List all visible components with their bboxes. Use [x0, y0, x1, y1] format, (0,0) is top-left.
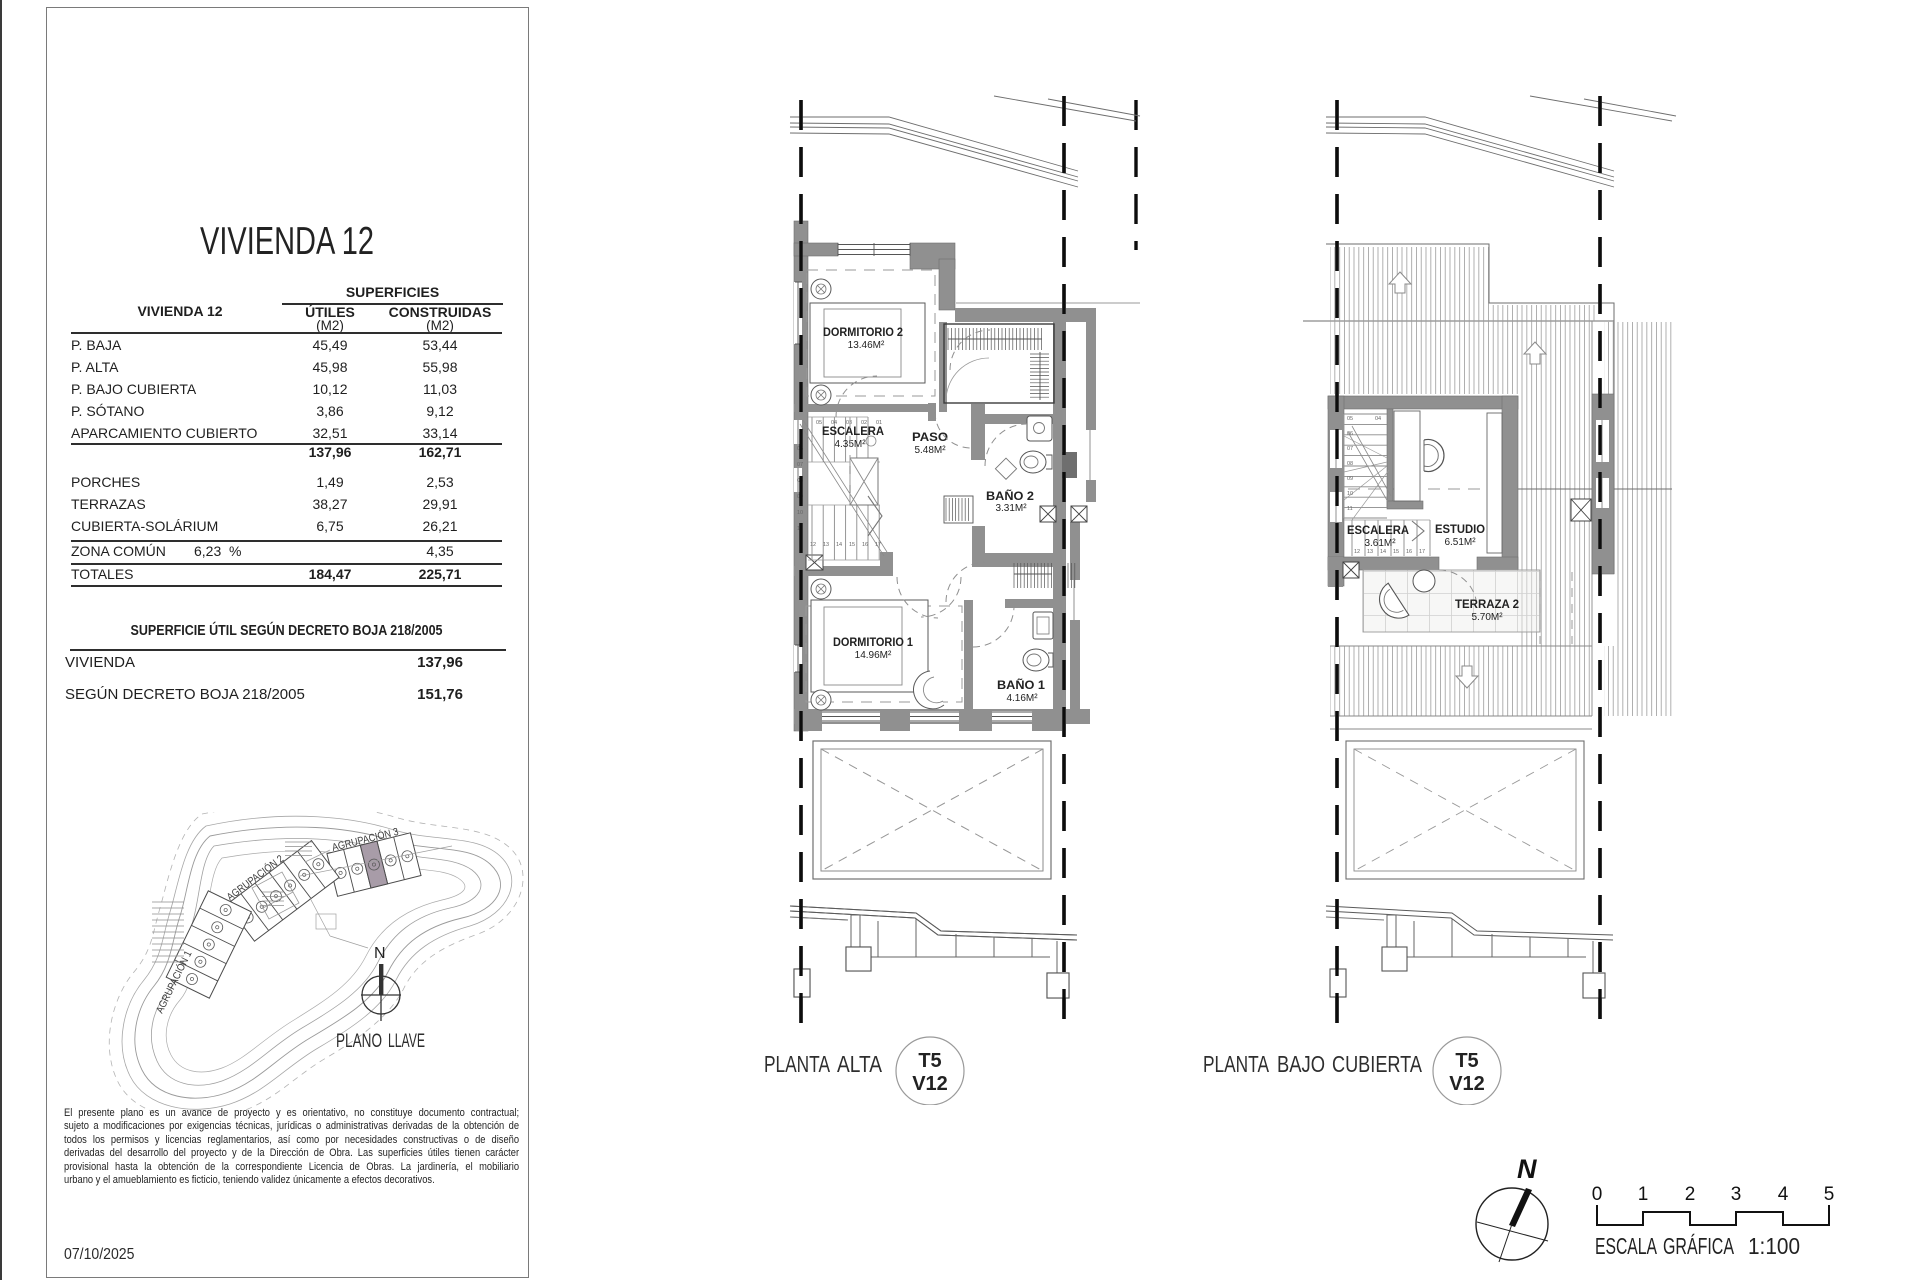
svg-text:15: 15 — [849, 542, 855, 548]
svg-text:04: 04 — [1375, 416, 1381, 422]
svg-text:3: 3 — [1731, 1184, 1742, 1205]
svg-text:TERRAZA 2: TERRAZA 2 — [1455, 597, 1519, 611]
svg-text:BAÑO 2: BAÑO 2 — [986, 488, 1034, 503]
svg-text:SUPERFICIE ÚTIL SEGÚN DECRETO: SUPERFICIE ÚTIL SEGÚN DECRETO BOJA 218/2… — [131, 621, 443, 639]
svg-text:09: 09 — [1347, 476, 1353, 482]
svg-text:DORMITORIO 2: DORMITORIO 2 — [823, 325, 903, 339]
svg-text:11: 11 — [1347, 506, 1353, 512]
svg-text:08: 08 — [1347, 461, 1353, 467]
svg-text:14: 14 — [836, 542, 842, 548]
svg-text:10: 10 — [1347, 491, 1353, 497]
svg-text:LLAVE: LLAVE — [388, 1031, 425, 1052]
svg-text:VIVIENDA 12: VIVIENDA 12 — [200, 220, 374, 263]
svg-text:10: 10 — [797, 510, 803, 516]
svg-text:16: 16 — [862, 542, 868, 548]
svg-text:PLANTA: PLANTA — [1203, 1051, 1269, 1077]
svg-text:0: 0 — [1592, 1184, 1603, 1205]
svg-text:3.31M²: 3.31M² — [995, 503, 1027, 514]
svg-text:V12: V12 — [1449, 1073, 1485, 1095]
svg-text:06: 06 — [1347, 431, 1353, 437]
svg-text:4: 4 — [1778, 1184, 1789, 1205]
svg-text:13: 13 — [823, 542, 829, 548]
svg-text:BAJO: BAJO — [1277, 1051, 1325, 1077]
svg-text:5: 5 — [1824, 1184, 1835, 1205]
svg-text:ALTA: ALTA — [837, 1051, 883, 1077]
svg-text:17: 17 — [1419, 549, 1425, 555]
svg-text:ESCALERA: ESCALERA — [1347, 523, 1409, 537]
svg-text:13: 13 — [1367, 549, 1373, 555]
svg-text:ESCALA: ESCALA — [1595, 1233, 1657, 1259]
svg-text:3.61M²: 3.61M² — [1364, 538, 1396, 549]
svg-text:16: 16 — [1406, 549, 1412, 555]
svg-text:T5: T5 — [1455, 1050, 1478, 1072]
svg-text:07: 07 — [1347, 446, 1353, 452]
svg-text:5.70M²: 5.70M² — [1471, 612, 1503, 623]
svg-text:T5: T5 — [918, 1050, 941, 1072]
svg-text:N: N — [374, 945, 386, 962]
svg-text:ESTUDIO: ESTUDIO — [1435, 522, 1485, 536]
svg-text:PASO: PASO — [912, 430, 948, 444]
svg-text:07: 07 — [797, 462, 803, 468]
svg-text:PLANO: PLANO — [336, 1031, 382, 1052]
svg-text:N: N — [1517, 1154, 1537, 1184]
svg-text:1:100: 1:100 — [1748, 1233, 1800, 1259]
svg-text:6.51M²: 6.51M² — [1444, 537, 1476, 548]
svg-text:13.46M²: 13.46M² — [848, 340, 885, 351]
svg-text:1: 1 — [1638, 1184, 1649, 1205]
svg-text:12: 12 — [810, 542, 816, 548]
svg-text:15: 15 — [1393, 549, 1399, 555]
svg-text:GRÁFICA: GRÁFICA — [1663, 1233, 1734, 1259]
svg-text:BAÑO 1: BAÑO 1 — [997, 677, 1045, 692]
svg-text:14.96M²: 14.96M² — [855, 650, 892, 661]
svg-text:V12: V12 — [912, 1073, 948, 1095]
svg-text:2: 2 — [1685, 1184, 1696, 1205]
svg-text:ESCALERA: ESCALERA — [822, 424, 884, 438]
svg-text:14: 14 — [1380, 549, 1386, 555]
svg-text:DORMITORIO 1: DORMITORIO 1 — [833, 635, 913, 649]
svg-text:12: 12 — [1354, 549, 1360, 555]
svg-text:05: 05 — [1347, 416, 1353, 422]
svg-text:4.16M²: 4.16M² — [1006, 693, 1038, 704]
svg-text:CUBIERTA: CUBIERTA — [1332, 1051, 1423, 1077]
svg-text:PLANTA: PLANTA — [764, 1051, 830, 1077]
svg-text:5.48M²: 5.48M² — [914, 445, 946, 456]
svg-text:17: 17 — [875, 542, 881, 548]
